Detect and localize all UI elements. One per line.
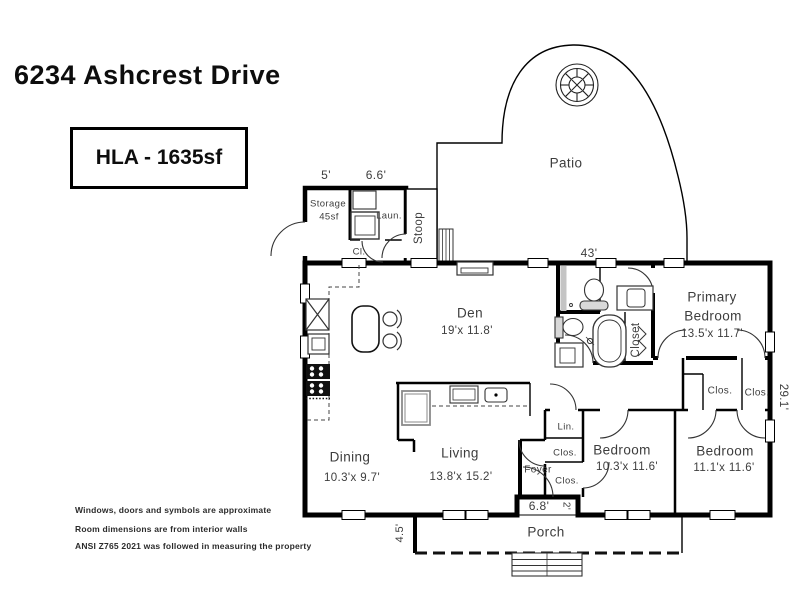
page-title: 6234 Ashcrest Drive [14,60,281,91]
disclaimer-line-2: Room dimensions are from interior walls [75,524,248,534]
patio-outline [437,45,687,263]
bedroom2-dims: 10.3'x 11.6' [596,461,658,473]
dim-entry-width: 6.8' [529,499,550,513]
window [342,511,365,520]
room-label-storage: Storage [310,199,346,210]
bedroom3-dims: 11.1'x 11.6' [693,462,754,474]
porch-steps [512,553,582,576]
room-label-primary-2: Bedroom [684,309,742,324]
bench-seat [457,262,493,275]
window [766,420,775,442]
room-label-living: Living [441,446,479,461]
window [664,259,684,268]
laundry-fixtures [351,191,379,239]
room-label-closet-b: Clos. [745,388,770,399]
patio-table [556,64,598,106]
dim-porch-depth: 4.5' [394,524,406,543]
cooktop [485,388,507,402]
counter-sink [450,386,478,403]
kitchen-sink [308,334,329,354]
disclaimer-line-1: Windows, doors and symbols are approxima… [75,505,271,515]
stoop-steps [439,229,453,263]
appliance-x [306,299,329,330]
hla-area-label: HLA - 1635sf [96,146,222,170]
dim-main-width: 43' [581,246,598,260]
den-dims: 19'x 11.8' [441,325,493,337]
storage-area-label: 45sf [319,212,339,223]
primary-dims: 13.5'x 11.7' [681,328,743,340]
room-label-linen: Lin. [558,422,575,433]
dim-storage-width: 5' [321,168,331,182]
room-label-den: Den [457,306,483,321]
kitchen-island [352,306,379,352]
dryer [353,191,376,209]
vanity-sink [555,343,583,367]
window [766,332,775,352]
window [342,259,366,268]
room-label-stoop: Stoop [413,212,425,244]
shower [561,266,567,311]
vanity-sink [617,286,653,310]
room-label-patio: Patio [550,156,583,171]
hla-area-badge: HLA - 1635sf [70,127,248,189]
dim-laundry-width: 6.6' [366,168,387,182]
room-label-foyer-closet-1: Clos. [553,448,577,459]
back-door-threshold [411,259,437,268]
window [628,511,650,520]
dim-entry-jog: 2' [561,502,572,510]
dining-dims: 10.3'x 9.7' [324,472,380,484]
window [596,259,616,268]
room-label-closet-small: Cl. [353,247,366,258]
room-label-primary-closet: Closet [630,323,642,358]
range-stove [306,364,330,399]
floor-plan-page: 6234 Ashcrest Drive HLA - 1635sf Patio 4… [0,0,803,593]
room-label-bedroom2: Bedroom [593,443,651,458]
window [443,511,465,520]
living-dims: 13.8'x 15.2' [430,471,493,483]
window [528,259,548,268]
window [605,511,627,520]
room-label-laundry: Laun. [376,211,402,222]
dim-main-depth: 29.1' [777,384,789,411]
room-label-foyer: Foyer [524,465,552,476]
room-label-primary-1: Primary [687,290,736,305]
room-label-dining: Dining [330,450,371,465]
room-label-closet-a: Clos. [708,386,733,397]
room-label-foyer-closet-2: Clos. [555,476,579,487]
door-arc [271,222,305,256]
disclaimer-line-3: ANSI Z765 2021 was followed in measuring… [75,541,311,551]
refrigerator [402,391,430,425]
room-label-bedroom3: Bedroom [696,444,754,459]
room-label-porch: Porch [527,525,564,540]
window [466,511,488,520]
window [710,511,735,520]
